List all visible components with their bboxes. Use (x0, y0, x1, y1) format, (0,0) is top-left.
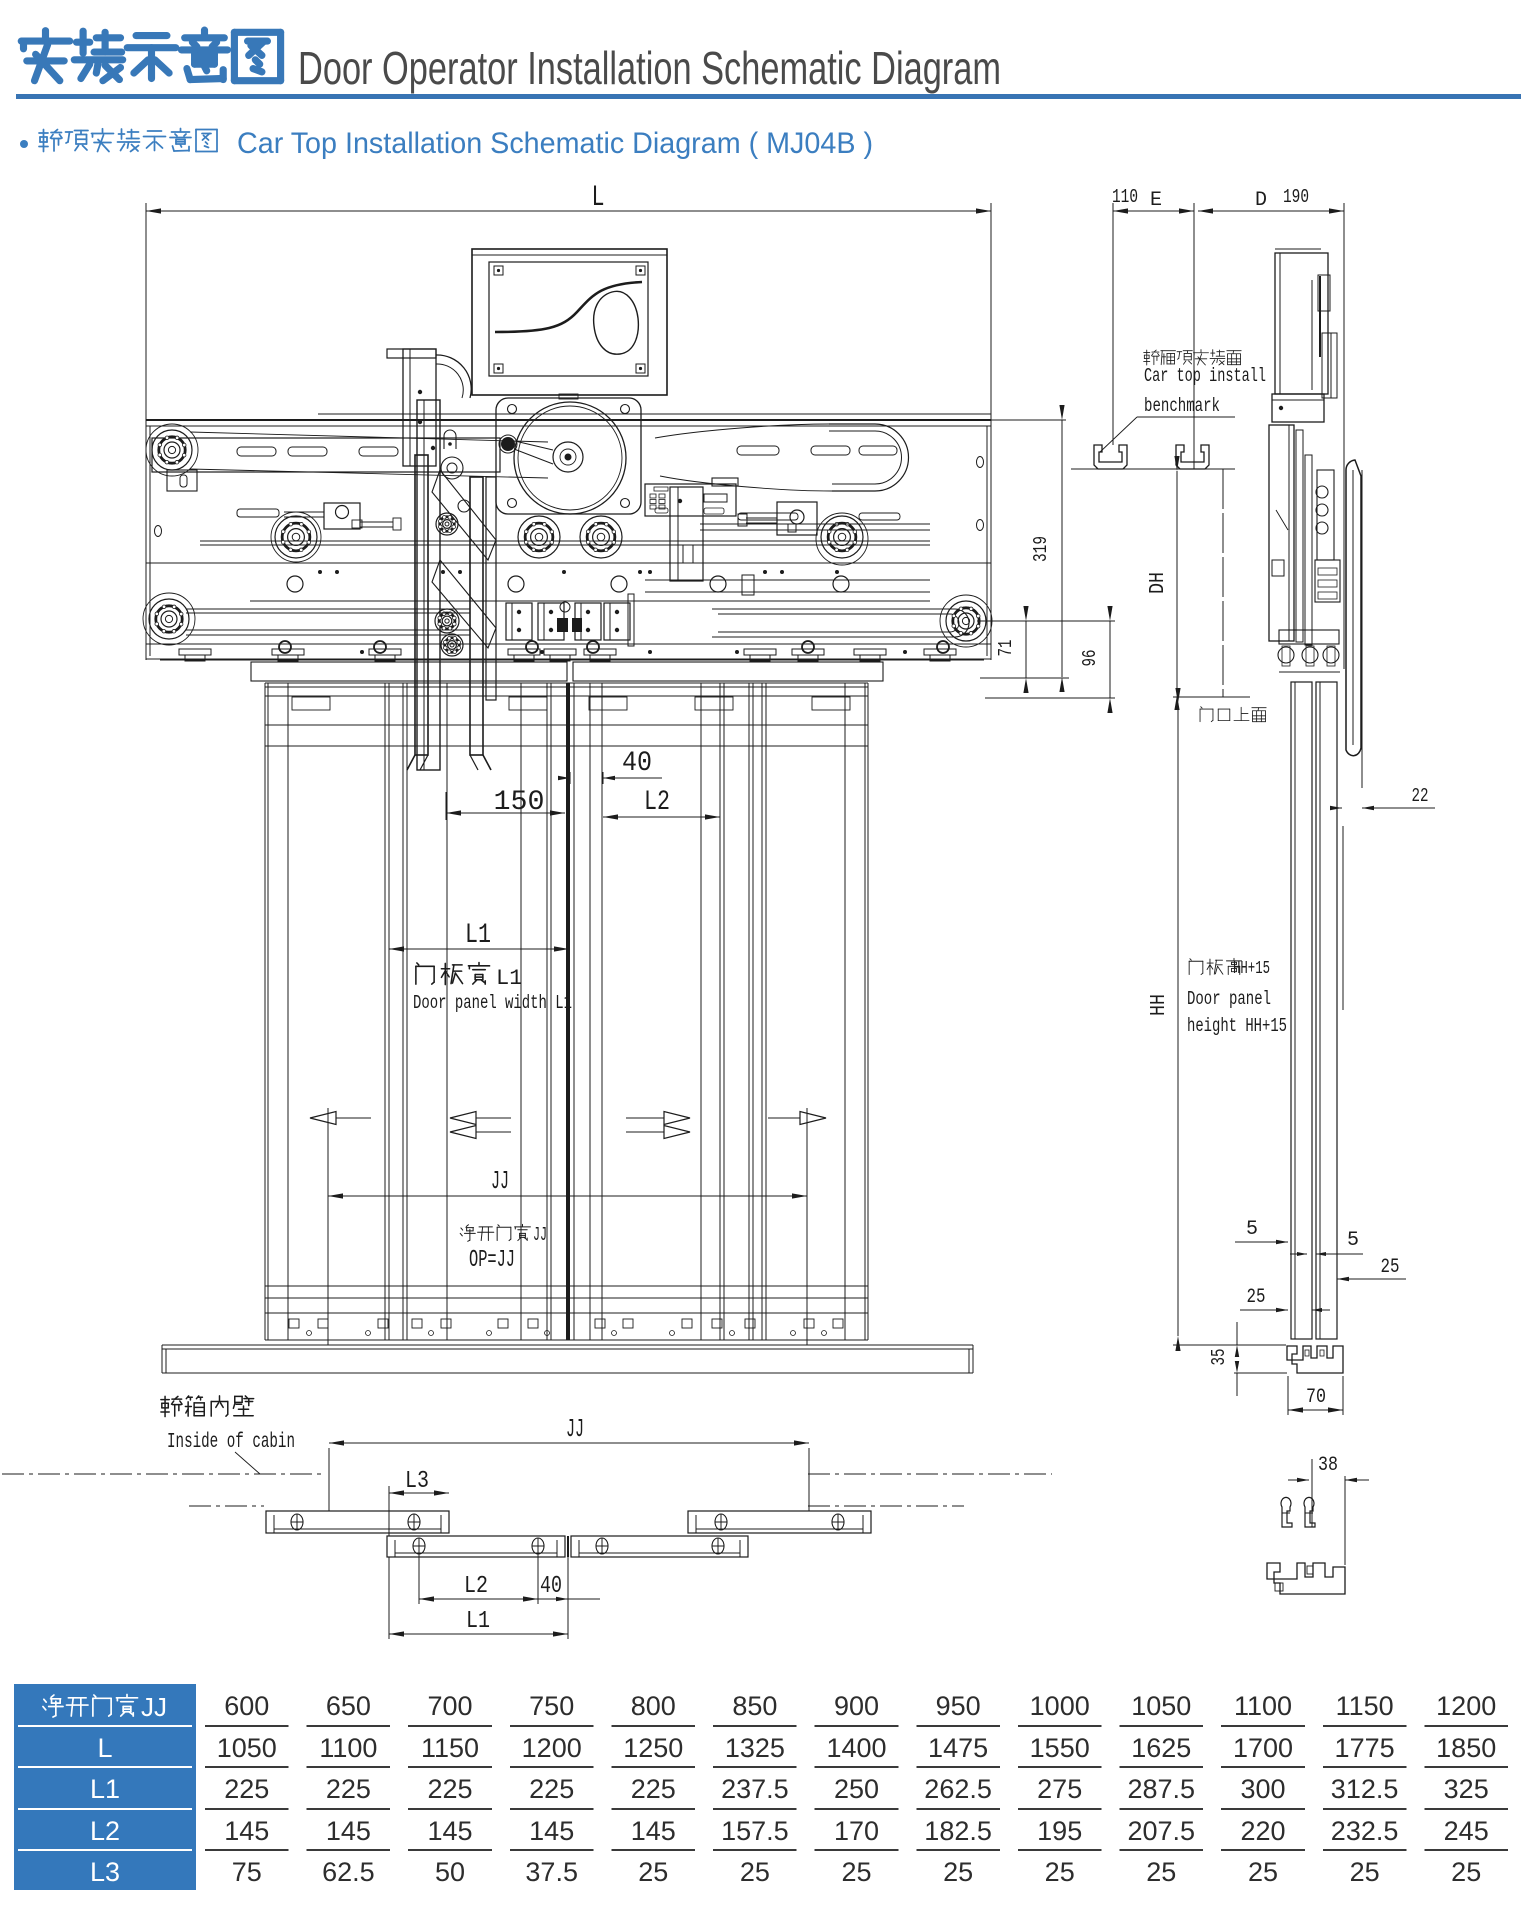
svg-text:150: 150 (494, 787, 545, 818)
svg-text:1050: 1050 (217, 1733, 277, 1763)
svg-text:250: 250 (834, 1774, 879, 1804)
svg-text:950: 950 (936, 1691, 981, 1721)
svg-text:190: 190 (1283, 186, 1309, 208)
svg-text:OP=JJ: OP=JJ (469, 1247, 515, 1274)
svg-text:1325: 1325 (725, 1733, 785, 1763)
svg-text:237.5: 237.5 (721, 1774, 789, 1804)
svg-text:Car top install: Car top install (1144, 365, 1266, 387)
svg-text:220: 220 (1240, 1816, 1285, 1846)
svg-text:1100: 1100 (1234, 1691, 1292, 1721)
svg-text:HH: HH (1148, 994, 1171, 1016)
svg-text:800: 800 (631, 1691, 676, 1721)
svg-text:L3: L3 (90, 1857, 120, 1887)
svg-text:1850: 1850 (1436, 1733, 1496, 1763)
svg-text:37.5: 37.5 (525, 1857, 578, 1887)
svg-text:145: 145 (224, 1816, 269, 1846)
svg-text:JJ: JJ (141, 1692, 167, 1722)
svg-text:25: 25 (1247, 1286, 1266, 1309)
svg-text:JJ: JJ (566, 1414, 584, 1444)
svg-text:25: 25 (740, 1857, 770, 1887)
svg-text:1100: 1100 (319, 1733, 377, 1763)
svg-text:207.5: 207.5 (1128, 1816, 1196, 1846)
svg-text:5: 5 (1246, 1218, 1258, 1241)
svg-text:Inside of cabin: Inside of cabin (167, 1431, 295, 1454)
svg-text:25: 25 (1350, 1857, 1380, 1887)
svg-text:225: 225 (631, 1774, 676, 1804)
svg-text:750: 750 (529, 1691, 574, 1721)
svg-text:195: 195 (1037, 1816, 1082, 1846)
svg-text:L1: L1 (496, 966, 522, 991)
svg-text:40: 40 (622, 748, 652, 779)
svg-text:L2: L2 (90, 1816, 120, 1846)
svg-text:50: 50 (435, 1857, 465, 1887)
svg-text:319: 319 (1030, 536, 1052, 562)
svg-text:145: 145 (326, 1816, 371, 1846)
svg-text:25: 25 (1045, 1857, 1075, 1887)
svg-text:L2: L2 (644, 787, 670, 818)
svg-text:300: 300 (1240, 1774, 1285, 1804)
svg-text:benchmark: benchmark (1144, 395, 1220, 417)
svg-text:71: 71 (995, 640, 1017, 657)
svg-text:1625: 1625 (1131, 1733, 1191, 1763)
svg-text:HH+15: HH+15 (1233, 959, 1270, 979)
svg-text:Car Top Installation Schematic: Car Top Installation Schematic Diagram (… (237, 127, 873, 160)
svg-text:JJ: JJ (491, 1166, 509, 1196)
svg-text:145: 145 (631, 1816, 676, 1846)
svg-text:70: 70 (1306, 1386, 1326, 1409)
svg-text:157.5: 157.5 (721, 1816, 789, 1846)
svg-text:height HH+15: height HH+15 (1187, 1015, 1287, 1037)
svg-text:275: 275 (1037, 1774, 1082, 1804)
svg-text:25: 25 (638, 1857, 668, 1887)
svg-text:1000: 1000 (1030, 1691, 1090, 1721)
svg-text:25: 25 (841, 1857, 871, 1887)
svg-text:25: 25 (1248, 1857, 1278, 1887)
svg-text:L: L (97, 1733, 112, 1763)
svg-text:1150: 1150 (421, 1733, 479, 1763)
svg-text:312.5: 312.5 (1331, 1774, 1399, 1804)
svg-text:1200: 1200 (522, 1733, 582, 1763)
svg-text:L1: L1 (466, 1608, 490, 1635)
svg-text:L2: L2 (464, 1573, 488, 1600)
svg-text:96: 96 (1079, 650, 1101, 667)
svg-text:25: 25 (1451, 1857, 1481, 1887)
svg-text:1400: 1400 (826, 1733, 886, 1763)
svg-text:35: 35 (1208, 1349, 1230, 1366)
svg-text:1550: 1550 (1030, 1733, 1090, 1763)
svg-text:L: L (592, 181, 605, 215)
svg-text:287.5: 287.5 (1128, 1774, 1196, 1804)
svg-text:E: E (1150, 189, 1162, 212)
svg-text:5: 5 (1347, 1229, 1359, 1252)
svg-text:38: 38 (1318, 1454, 1338, 1477)
svg-text:1150: 1150 (1336, 1691, 1394, 1721)
svg-text:225: 225 (427, 1774, 472, 1804)
svg-text:JJ: JJ (533, 1224, 547, 1246)
svg-text:Door panel: Door panel (1187, 988, 1271, 1010)
svg-text:170: 170 (834, 1816, 879, 1846)
svg-text:25: 25 (1381, 1256, 1400, 1279)
svg-text:225: 225 (224, 1774, 269, 1804)
svg-text:325: 325 (1444, 1774, 1489, 1804)
svg-text:L1: L1 (90, 1774, 120, 1804)
svg-text:L1: L1 (465, 920, 491, 951)
svg-text:Door panel width L1: Door panel width L1 (413, 992, 572, 1014)
svg-text:232.5: 232.5 (1331, 1816, 1399, 1846)
svg-text:850: 850 (732, 1691, 777, 1721)
svg-text:D: D (1255, 189, 1267, 212)
svg-text:245: 245 (1444, 1816, 1489, 1846)
svg-text:110: 110 (1112, 186, 1138, 208)
svg-text:1050: 1050 (1131, 1691, 1191, 1721)
svg-text:900: 900 (834, 1691, 879, 1721)
svg-text:650: 650 (326, 1691, 371, 1721)
svg-text:1250: 1250 (623, 1733, 683, 1763)
svg-text:62.5: 62.5 (322, 1857, 375, 1887)
svg-text:700: 700 (427, 1691, 472, 1721)
svg-text:25: 25 (1146, 1857, 1176, 1887)
svg-text:22: 22 (1412, 785, 1429, 807)
svg-text:262.5: 262.5 (924, 1774, 992, 1804)
svg-text:1775: 1775 (1335, 1733, 1395, 1763)
svg-text:Door Operator Installation Sch: Door Operator Installation Schematic Dia… (298, 42, 1001, 94)
svg-text:600: 600 (224, 1691, 269, 1721)
svg-text:L3: L3 (405, 1468, 429, 1495)
svg-text:75: 75 (232, 1857, 262, 1887)
svg-text:40: 40 (540, 1573, 562, 1600)
svg-text:25: 25 (943, 1857, 973, 1887)
svg-text:1475: 1475 (928, 1733, 988, 1763)
svg-text:145: 145 (529, 1816, 574, 1846)
svg-text:DH: DH (1147, 572, 1170, 594)
svg-text:1700: 1700 (1233, 1733, 1293, 1763)
svg-text:182.5: 182.5 (924, 1816, 992, 1846)
svg-text:1200: 1200 (1436, 1691, 1496, 1721)
svg-text:225: 225 (326, 1774, 371, 1804)
svg-text:225: 225 (529, 1774, 574, 1804)
svg-text:145: 145 (427, 1816, 472, 1846)
